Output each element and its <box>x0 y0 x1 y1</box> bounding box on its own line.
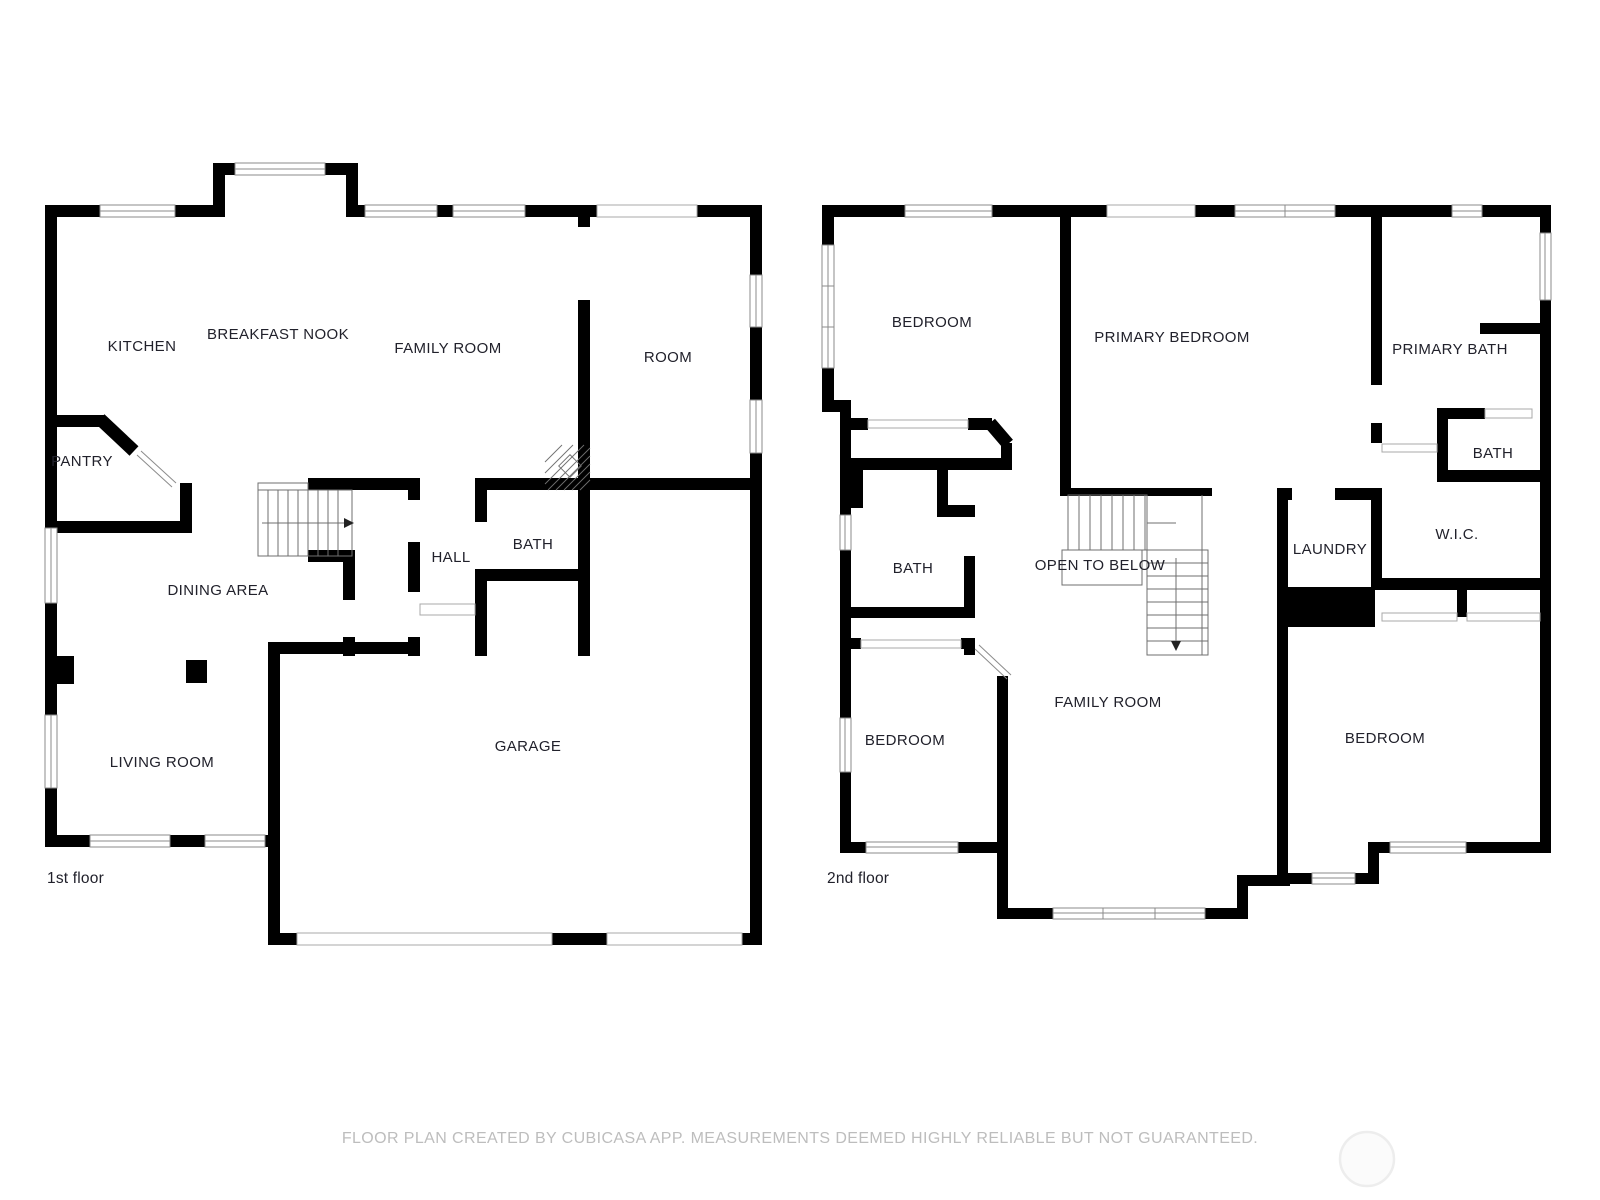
garage-door-opening <box>297 933 552 945</box>
room-label-bath-1: BATH <box>513 536 554 553</box>
floor-plan-sheet: KITCHEN BREAKFAST NOOK FAMILY ROOM ROOM … <box>0 0 1600 1200</box>
room-label-dining-area: DINING AREA <box>167 582 268 599</box>
room-label-open-to-below: OPEN TO BELOW <box>1035 557 1166 574</box>
watermark-circle <box>1340 1132 1394 1186</box>
room-label-bath-right: BATH <box>1473 445 1514 462</box>
windows-first-floor <box>45 163 762 945</box>
closet-door <box>1467 613 1540 621</box>
garage-door-opening <box>607 933 742 945</box>
room-label-wic: W.I.C. <box>1435 526 1478 543</box>
stairs-down-arrow <box>1171 641 1181 651</box>
room-label-bedroom-3: BEDROOM <box>1345 730 1425 747</box>
staircase-second-floor <box>1062 495 1208 655</box>
room-label-breakfast-nook: BREAKFAST NOOK <box>207 326 349 343</box>
footer-disclaimer: FLOOR PLAN CREATED BY CUBICASA APP. MEAS… <box>342 1130 1258 1147</box>
room-label-laundry: LAUNDRY <box>1293 541 1367 558</box>
room-label-living-room: LIVING ROOM <box>110 754 214 771</box>
room-label-hall: HALL <box>431 549 470 566</box>
room-label-family-room-1: FAMILY ROOM <box>394 340 501 357</box>
closet-sliding-door <box>868 420 968 428</box>
first-floor-plan: KITCHEN BREAKFAST NOOK FAMILY ROOM ROOM … <box>45 163 762 945</box>
hall-garage-door <box>420 604 475 615</box>
closet-door <box>1382 613 1457 621</box>
room-labels-second-floor: BEDROOM PRIMARY BEDROOM PRIMARY BATH BAT… <box>865 314 1513 749</box>
closet-sliding-door <box>861 640 961 648</box>
room-label-bath-left: BATH <box>893 560 934 577</box>
shower-glass <box>1485 409 1532 418</box>
floor-label-1st: 1st floor <box>47 870 104 887</box>
room-label-bedroom-2: BEDROOM <box>865 732 945 749</box>
room-labels-first-floor: KITCHEN BREAKFAST NOOK FAMILY ROOM ROOM … <box>51 326 692 771</box>
second-floor-plan: BEDROOM PRIMARY BEDROOM PRIMARY BATH BAT… <box>822 205 1551 919</box>
room-label-kitchen: KITCHEN <box>108 338 177 355</box>
room-label-room: ROOM <box>644 349 692 366</box>
room-label-pantry: PANTRY <box>51 453 113 470</box>
primary-suite-door <box>1382 444 1437 452</box>
staircase-first-floor <box>258 483 354 556</box>
room-label-primary-bedroom: PRIMARY BEDROOM <box>1094 329 1249 346</box>
room-label-bedroom-1: BEDROOM <box>892 314 972 331</box>
room-label-family-room-2: FAMILY ROOM <box>1054 694 1161 711</box>
room-label-garage: GARAGE <box>495 738 562 755</box>
floor-plan-canvas: KITCHEN BREAKFAST NOOK FAMILY ROOM ROOM … <box>0 0 1600 1200</box>
room-label-primary-bath: PRIMARY BATH <box>1392 341 1508 358</box>
floor-label-2nd: 2nd floor <box>827 870 889 887</box>
walls-first-floor <box>45 163 762 945</box>
